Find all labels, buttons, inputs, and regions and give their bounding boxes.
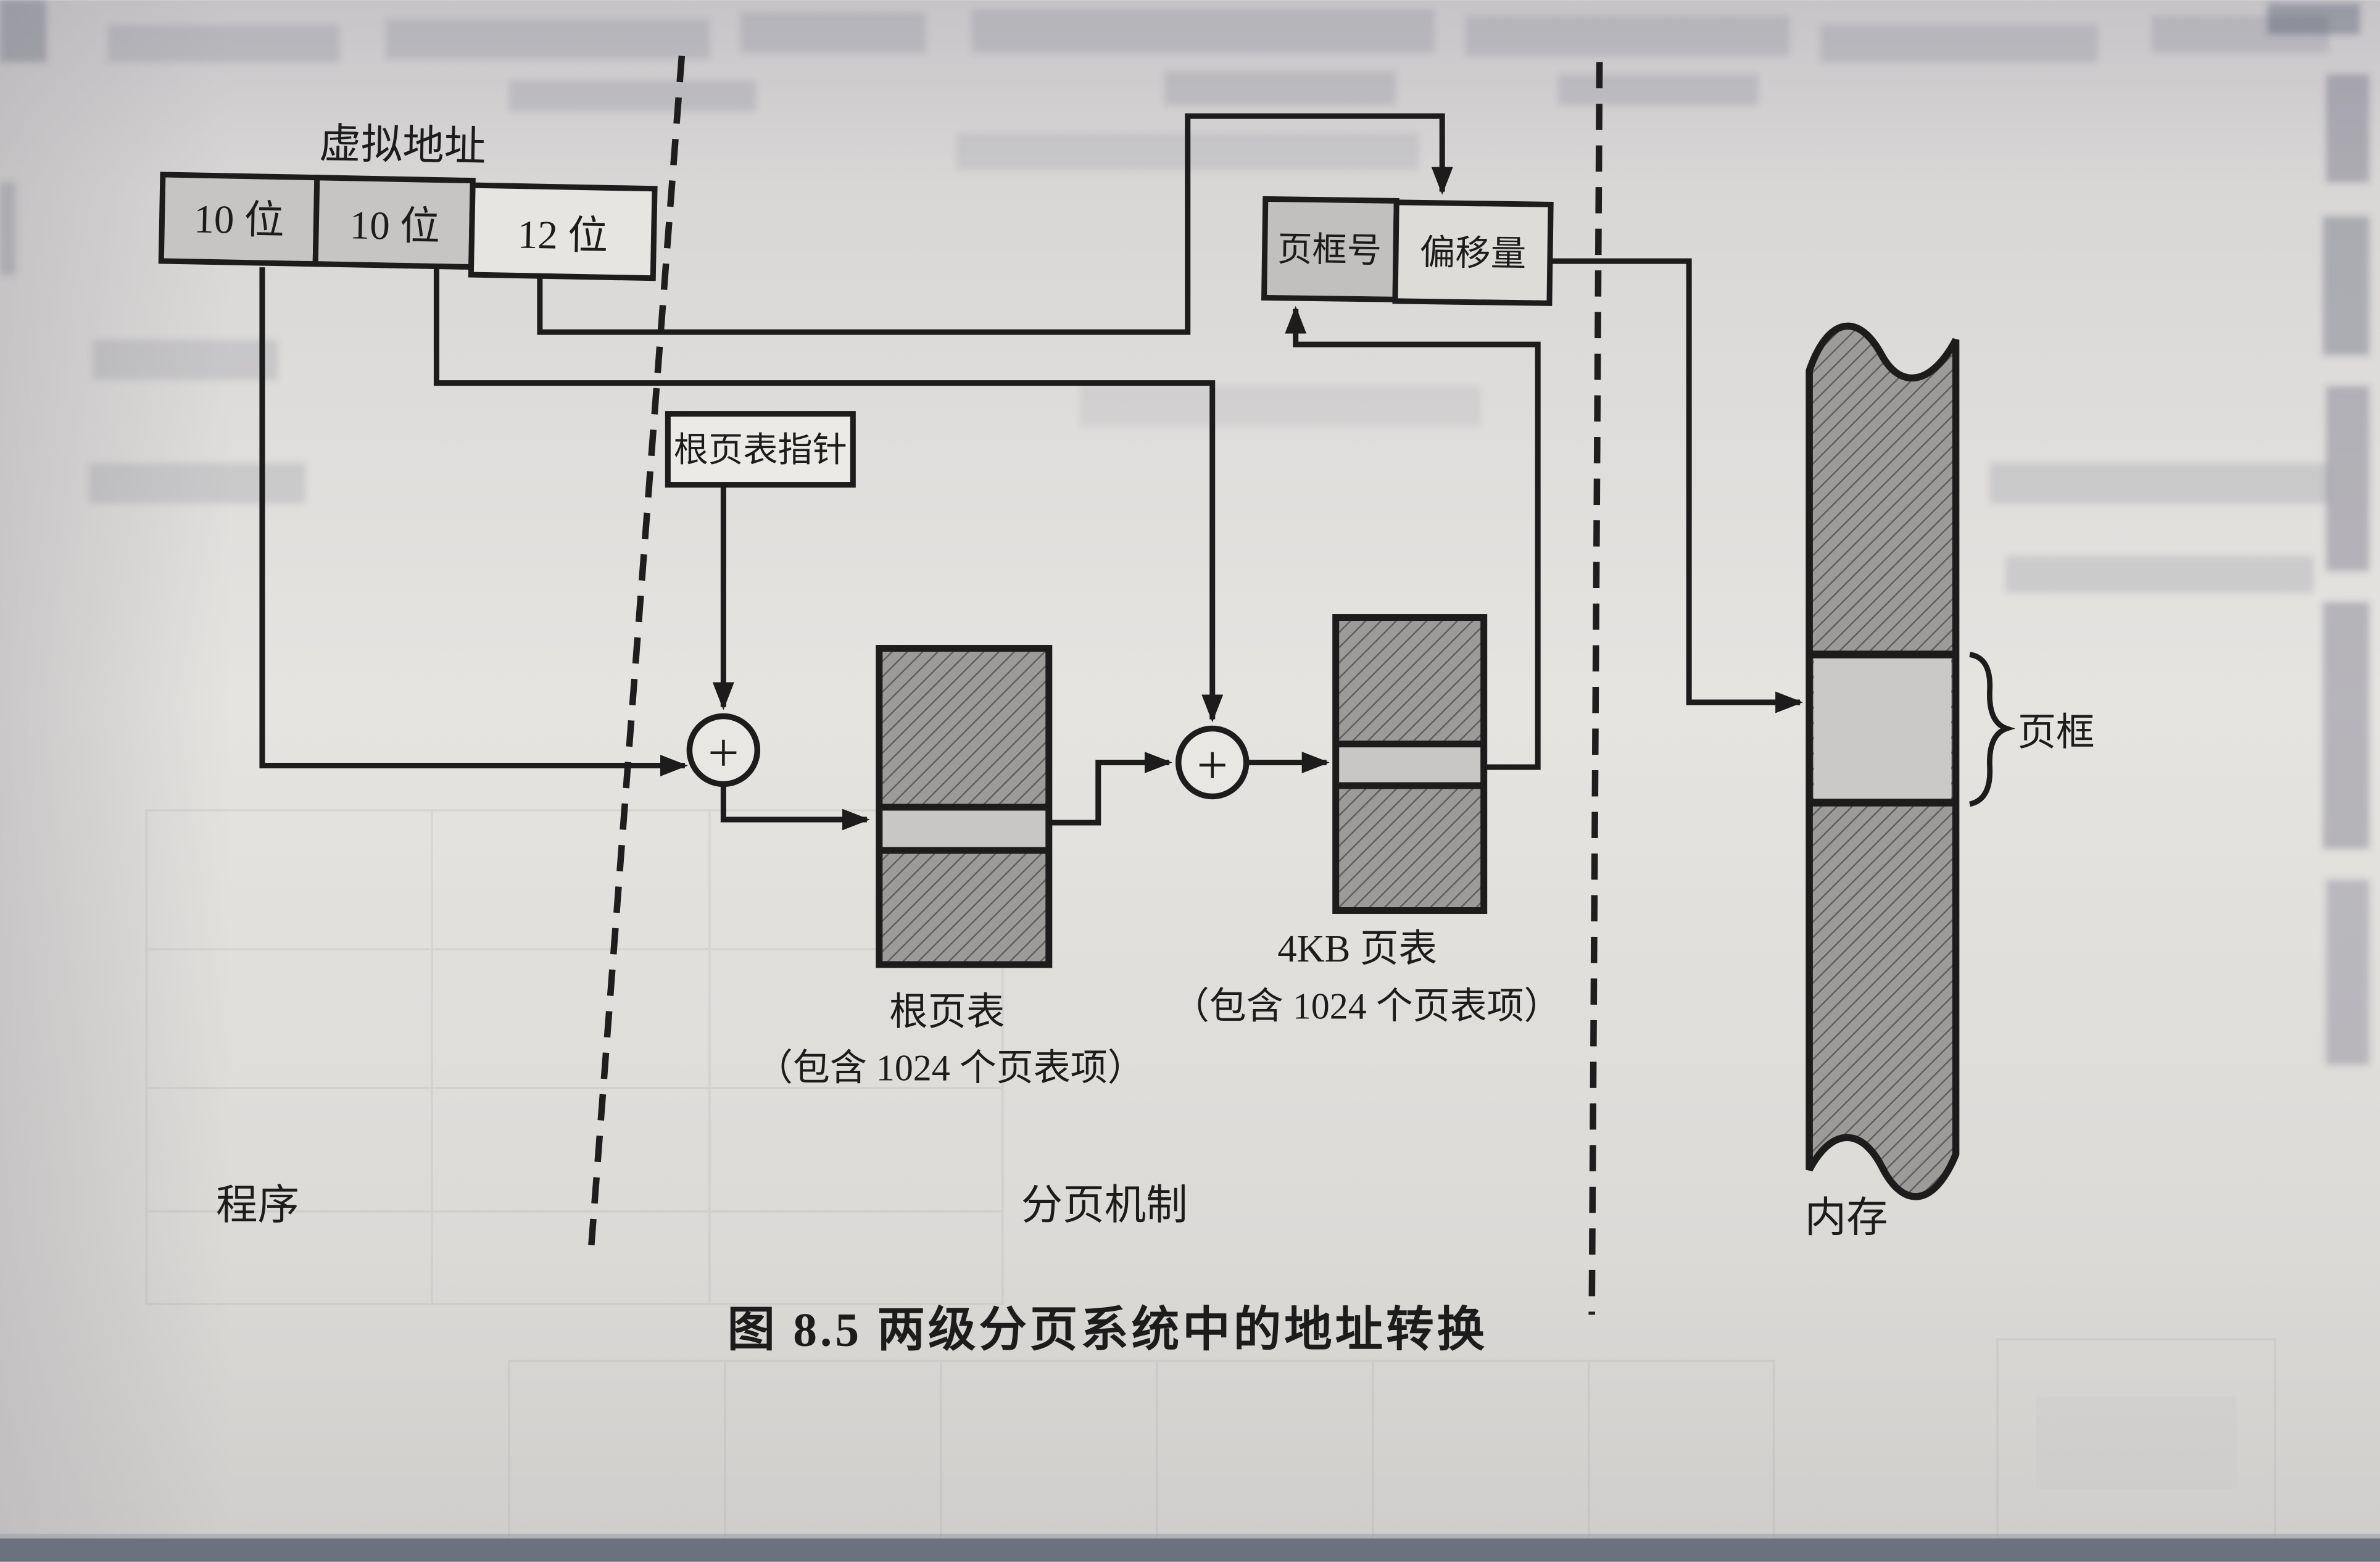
frame-number-label: 页框号 [1277, 231, 1382, 270]
region-label-program: 程序 [216, 1182, 299, 1228]
adder-2: + [1179, 729, 1246, 797]
root-pointer-label: 根页表指针 [674, 431, 847, 470]
memory-page-frame-band [1814, 658, 1951, 800]
root-table-top-section [879, 649, 1049, 804]
4kb-table-bottom-section [1336, 789, 1484, 910]
virtual-address-label: 虚拟地址 [319, 120, 486, 170]
4kb-table-note: （包含 1024 个页表项） [1172, 986, 1561, 1026]
region-label-memory: 内存 [1805, 1194, 1888, 1240]
figure-8-5-diagram: 虚拟地址 10 位 10 位 12 位 根页表指针 + + [0, 0, 2380, 1562]
figure-caption: 图 8.5 两级分页系统中的地址转换 [727, 1303, 1488, 1356]
root-table-note: （包含 1024 个页表项） [756, 1047, 1145, 1088]
4kb-table-name: 4KB 页表 [1277, 927, 1437, 970]
va-field-3-label: 12 位 [517, 213, 608, 259]
photo-bottom-edge-highlight [0, 1534, 2380, 1538]
region-label-paging: 分页机制 [1021, 1182, 1188, 1228]
root-table-name: 根页表 [889, 990, 1005, 1033]
book-page-photo: 虚拟地址 10 位 10 位 12 位 根页表指针 + + [0, 0, 2380, 1562]
root-table-bottom-section [879, 854, 1049, 965]
adder-1: + [689, 717, 757, 784]
physical-address-box: 页框号 偏移量 [1264, 199, 1551, 303]
adder-2-plus-icon: + [1196, 734, 1228, 796]
root-table-entry-band [879, 808, 1049, 849]
4kb-table-top-section [1336, 618, 1484, 742]
va-field-2-label: 10 位 [349, 203, 441, 249]
offset-label: 偏移量 [1419, 233, 1526, 273]
page-frame-label: 页框 [2018, 710, 2095, 754]
va-field-1-label: 10 位 [194, 197, 285, 243]
root-pointer-box: 根页表指针 [668, 414, 853, 485]
4kb-table-entry-band [1336, 746, 1484, 784]
adder-1-plus-icon: + [708, 723, 739, 784]
photo-bottom-edge [0, 1539, 2380, 1561]
